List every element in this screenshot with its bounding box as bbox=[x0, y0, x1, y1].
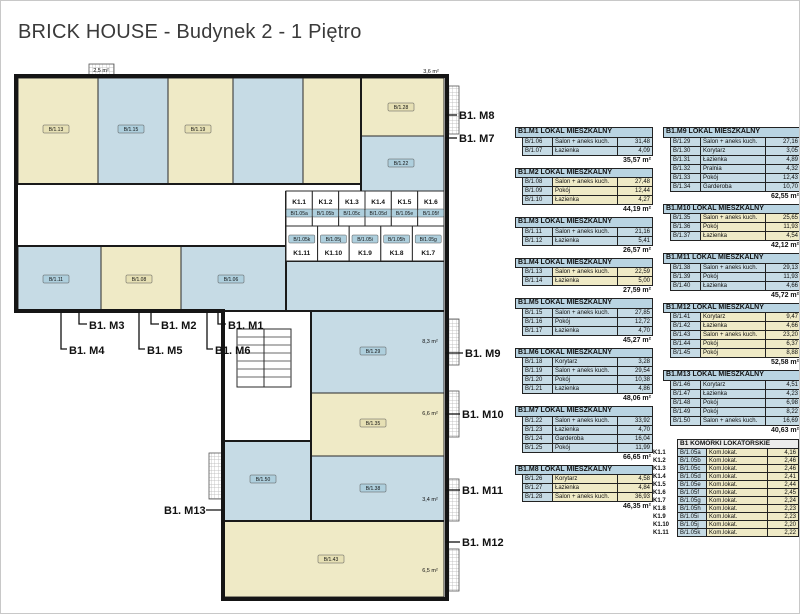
callout-leader-m5 bbox=[139, 312, 145, 349]
storage-area: 2,22 bbox=[768, 529, 798, 536]
table-row: B/1.44Pokój6,37 bbox=[671, 339, 800, 348]
room-code-chip: B/1.28 bbox=[394, 105, 409, 111]
room-code: B/1.16 bbox=[523, 318, 553, 326]
storage-cell-label: K1.11 bbox=[293, 250, 310, 257]
room-name: Salon + aneks kuch. bbox=[553, 309, 618, 317]
table-row: B/1.28Salon + aneks kuch.36,93 bbox=[523, 492, 652, 501]
storage-name: Kom.lokat. bbox=[707, 481, 768, 488]
room-area: 27,48 bbox=[618, 178, 652, 186]
storage-cell-code: B/1.05e bbox=[396, 211, 413, 217]
storage-row-cells: B/1.05fKom.lokat.2,45 bbox=[677, 489, 799, 497]
balcony-area-label: 3,6 m² bbox=[423, 69, 439, 75]
balcony-area-label: 2,5 m² bbox=[93, 68, 109, 74]
apartment-table-header: B1.M13 LOKAL MIESZKALNY bbox=[663, 370, 800, 381]
room-area: 8,22 bbox=[766, 408, 800, 416]
table-row: B/1.34Garderoba10,70 bbox=[671, 182, 800, 191]
room-code: B/1.06 bbox=[523, 138, 553, 146]
apartment-total-area: 45,27 m² bbox=[515, 336, 653, 345]
callout-leader-m6 bbox=[207, 312, 213, 349]
storage-unit-label: K1.9 bbox=[651, 513, 677, 521]
room-code: B/1.31 bbox=[671, 156, 701, 164]
table-row: B/1.22Salon + aneks kuch.33,92 bbox=[523, 417, 652, 425]
room-code: B/1.09 bbox=[523, 187, 553, 195]
room-name: Salon + aneks kuch. bbox=[701, 331, 766, 339]
apartment-total-area: 48,06 m² bbox=[515, 394, 653, 403]
room-area: 4,32 bbox=[766, 165, 800, 173]
storage-cell-code: B/1.05b bbox=[317, 211, 334, 217]
storage-code: B/1.05f bbox=[678, 489, 707, 496]
room-name: Korytarz bbox=[701, 313, 766, 321]
room-code: B/1.38 bbox=[671, 264, 701, 272]
storage-cell-label: K1.4 bbox=[371, 199, 385, 206]
room-code: B/1.29 bbox=[671, 138, 701, 146]
apartment-table-body: B/1.26Korytarz4,58B/1.27Łazienka4,84B/1.… bbox=[522, 475, 653, 502]
storage-name: Kom.lokat. bbox=[707, 473, 768, 480]
apartment-total-area: 35,57 m² bbox=[515, 156, 653, 165]
room-code: B/1.43 bbox=[671, 331, 701, 339]
storage-table: B1 KOMÓRKI LOKATORSKIE K1.1B/1.05aKom.lo… bbox=[651, 439, 799, 537]
table-row: B/1.26Korytarz4,58 bbox=[523, 475, 652, 483]
room-name: Łazienka bbox=[553, 484, 618, 492]
room-name: Salon + aneks kuch. bbox=[701, 417, 766, 425]
apartment-callout-m7: B1. M7 bbox=[459, 133, 494, 145]
room bbox=[233, 78, 303, 184]
storage-unit-label: K1.11 bbox=[651, 529, 677, 537]
apartment-table-header: B1.M7 LOKAL MIESZKALNY bbox=[515, 406, 653, 417]
room-code: B/1.41 bbox=[671, 313, 701, 321]
apartment-callout-m9: B1. M9 bbox=[465, 348, 500, 360]
table-row: B/1.15Salon + aneks kuch.27,85 bbox=[523, 309, 652, 317]
stairs-icon bbox=[237, 329, 291, 387]
room-code: B/1.48 bbox=[671, 399, 701, 407]
room-name: Łazienka bbox=[701, 390, 766, 398]
storage-row: K1.11B/1.05kKom.lokat.2,22 bbox=[651, 529, 799, 537]
storage-name: Kom.lokat. bbox=[707, 449, 768, 456]
apartment-table-b1-m12: B1.M12 LOKAL MIESZKALNYB/1.41Korytarz9,4… bbox=[663, 303, 800, 368]
room-code: B/1.49 bbox=[671, 408, 701, 416]
apartment-table-b1-m7: B1.M7 LOKAL MIESZKALNYB/1.22Salon + anek… bbox=[515, 406, 653, 462]
room-name: Pokój bbox=[553, 444, 618, 452]
room-name: Pokój bbox=[701, 408, 766, 416]
storage-cell-code: B/1.05h bbox=[388, 237, 405, 243]
apartment-table-header: B1.M6 LOKAL MIESZKALNY bbox=[515, 348, 653, 359]
room-code: B/1.44 bbox=[671, 340, 701, 348]
storage-name: Kom.lokat. bbox=[707, 521, 768, 528]
room-area: 5,00 bbox=[618, 277, 652, 285]
callout-leader-m4 bbox=[61, 312, 67, 349]
room-name: Salon + aneks kuch. bbox=[553, 493, 618, 501]
room-area: 11,93 bbox=[766, 223, 800, 231]
room-code: B/1.15 bbox=[523, 309, 553, 317]
room-code-chip: B/1.38 bbox=[366, 486, 381, 492]
room-code: B/1.21 bbox=[523, 385, 553, 393]
apartment-table-header: B1.M9 LOKAL MIESZKALNY bbox=[663, 127, 800, 138]
table-row: B/1.37Łazienka4,54 bbox=[671, 231, 800, 240]
apartment-table-b1-m2: B1.M2 LOKAL MIESZKALNYB/1.08Salon + anek… bbox=[515, 168, 653, 215]
apartment-table-header: B1.M4 LOKAL MIESZKALNY bbox=[515, 258, 653, 269]
storage-name: Kom.lokat. bbox=[707, 529, 768, 536]
apartment-table-header: B1.M11 LOKAL MIESZKALNY bbox=[663, 253, 800, 264]
storage-area: 2,23 bbox=[768, 505, 798, 512]
room-name: Korytarz bbox=[701, 381, 766, 389]
apartment-table-header: B1.M5 LOKAL MIESZKALNY bbox=[515, 298, 653, 309]
storage-area: 2,45 bbox=[768, 489, 798, 496]
apartment-table-header: B1.M10 LOKAL MIESZKALNY bbox=[663, 204, 800, 215]
table-row: B/1.23Łazienka4,70 bbox=[523, 425, 652, 434]
table-row: B/1.07Łazienka4,09 bbox=[523, 146, 652, 155]
storage-code: B/1.05a bbox=[678, 449, 707, 456]
apartment-table-b1-m11: B1.M11 LOKAL MIESZKALNYB/1.38Salon + ane… bbox=[663, 253, 800, 300]
table-row: B/1.32Pralnia4,32 bbox=[671, 164, 800, 173]
storage-cell-label: K1.3 bbox=[345, 199, 359, 206]
room-area: 16,04 bbox=[618, 435, 652, 443]
storage-unit-label: K1.10 bbox=[651, 521, 677, 529]
storage-row-cells: B/1.05bKom.lokat.2,46 bbox=[677, 457, 799, 465]
storage-unit-label: K1.4 bbox=[651, 473, 677, 481]
room-code: B/1.20 bbox=[523, 376, 553, 384]
room-code-chip: B/1.35 bbox=[366, 421, 381, 427]
storage-row-cells: B/1.05jKom.lokat.2,20 bbox=[677, 521, 799, 529]
room-name: Łazienka bbox=[701, 322, 766, 330]
table-row: B/1.43Salon + aneks kuch.23,20 bbox=[671, 330, 800, 339]
room-code: B/1.30 bbox=[671, 147, 701, 155]
storage-code: B/1.05k bbox=[678, 529, 707, 536]
callout-leader-m2 bbox=[151, 312, 159, 324]
apartment-table-body: B/1.22Salon + aneks kuch.33,92B/1.23Łazi… bbox=[522, 417, 653, 453]
apartment-callout-m13: B1. M13 bbox=[164, 505, 206, 517]
room-area: 22,59 bbox=[618, 268, 652, 276]
room-name: Pralnia bbox=[701, 165, 766, 173]
room-name: Salon + aneks kuch. bbox=[553, 367, 618, 375]
table-row: B/1.24Garderoba16,04 bbox=[523, 434, 652, 443]
apartment-total-area: 26,57 m² bbox=[515, 246, 653, 255]
apartment-table-header: B1.M3 LOKAL MIESZKALNY bbox=[515, 217, 653, 228]
room-name: Salon + aneks kuch. bbox=[553, 228, 618, 236]
apartment-callout-m10: B1. M10 bbox=[462, 409, 504, 421]
storage-unit-label: K1.8 bbox=[651, 505, 677, 513]
room-code: B/1.45 bbox=[671, 349, 701, 357]
storage-row-cells: B/1.05aKom.lokat.4,16 bbox=[677, 449, 799, 457]
room-area: 29,13 bbox=[766, 264, 800, 272]
storage-row-cells: B/1.05kKom.lokat.2,22 bbox=[677, 529, 799, 537]
room-code: B/1.22 bbox=[523, 417, 553, 425]
room-code: B/1.24 bbox=[523, 435, 553, 443]
room-name: Pokój bbox=[701, 399, 766, 407]
callout-leader-m3 bbox=[79, 312, 87, 324]
room-name: Łazienka bbox=[701, 232, 766, 240]
room-code: B/1.18 bbox=[523, 358, 553, 366]
apartment-callout-m1: B1. M1 bbox=[228, 320, 263, 332]
storage-row: K1.7B/1.05gKom.lokat.2,24 bbox=[651, 497, 799, 505]
storage-row-cells: B/1.05hKom.lokat.2,23 bbox=[677, 505, 799, 513]
room-area: 4,66 bbox=[766, 282, 800, 290]
apartment-callout-m11: B1. M11 bbox=[462, 485, 503, 497]
floor-plan: K1.1B/1.05aK1.2B/1.05bK1.3B/1.05cK1.4B/1… bbox=[1, 1, 513, 614]
apartment-tables-column-1: B1.M1 LOKAL MIESZKALNYB/1.06Salon + anek… bbox=[515, 127, 653, 514]
storage-code: B/1.05c bbox=[678, 465, 707, 472]
table-row: B/1.11Salon + aneks kuch.21,16 bbox=[523, 228, 652, 236]
apartment-table-b1-m4: B1.M4 LOKAL MIESZKALNYB/1.13Salon + anek… bbox=[515, 258, 653, 296]
storage-cell-label: K1.10 bbox=[325, 250, 343, 257]
apartment-callout-m8: B1. M8 bbox=[459, 110, 494, 122]
storage-row-cells: B/1.05gKom.lokat.2,24 bbox=[677, 497, 799, 505]
storage-cell bbox=[391, 191, 417, 226]
room-code: B/1.27 bbox=[523, 484, 553, 492]
room-area: 27,85 bbox=[618, 309, 652, 317]
apartment-callout-m6: B1. M6 bbox=[215, 345, 250, 357]
room-area: 29,54 bbox=[618, 367, 652, 375]
page: BRICK HOUSE - Budynek 2 - 1 Piętro bbox=[0, 0, 800, 614]
table-row: B/1.41Korytarz9,47 bbox=[671, 313, 800, 321]
table-row: B/1.16Pokój12,72 bbox=[523, 317, 652, 326]
room-code: B/1.25 bbox=[523, 444, 553, 452]
apartment-table-header: B1.M1 LOKAL MIESZKALNY bbox=[515, 127, 653, 138]
room-area: 6,37 bbox=[766, 340, 800, 348]
room-code: B/1.37 bbox=[671, 232, 701, 240]
table-row: B/1.45Pokój8,88 bbox=[671, 348, 800, 357]
room-area: 9,47 bbox=[766, 313, 800, 321]
room-code: B/1.34 bbox=[671, 183, 701, 191]
room-code-chip: B/1.19 bbox=[191, 127, 206, 133]
apartment-table-body: B/1.18Korytarz3,28B/1.19Salon + aneks ku… bbox=[522, 358, 653, 394]
storage-cell-code: B/1.05a bbox=[291, 211, 308, 217]
balcony-area-label: 8,3 m² bbox=[422, 339, 438, 345]
storage-code: B/1.05e bbox=[678, 481, 707, 488]
room-name: Łazienka bbox=[701, 282, 766, 290]
apartment-table-body: B/1.41Korytarz9,47B/1.42Łazienka4,66B/1.… bbox=[670, 313, 800, 358]
room-name: Pokój bbox=[553, 376, 618, 384]
storage-area: 2,46 bbox=[768, 457, 798, 464]
apartment-total-area: 46,35 m² bbox=[515, 502, 653, 511]
room-code: B/1.32 bbox=[671, 165, 701, 173]
storage-area: 2,24 bbox=[768, 497, 798, 504]
room-name: Pokój bbox=[553, 318, 618, 326]
apartment-table-header: B1.M12 LOKAL MIESZKALNY bbox=[663, 303, 800, 314]
storage-row: K1.4B/1.05dKom.lokat.2,41 bbox=[651, 473, 799, 481]
table-row: B/1.19Salon + aneks kuch.29,54 bbox=[523, 366, 652, 375]
table-row: B/1.48Pokój6,98 bbox=[671, 398, 800, 407]
apartment-callout-m12: B1. M12 bbox=[462, 537, 504, 549]
storage-cell-code: B/1.05i bbox=[357, 237, 373, 243]
storage-area: 4,16 bbox=[768, 449, 798, 456]
room-code-chip: B/1.15 bbox=[124, 127, 139, 133]
room-area: 10,70 bbox=[766, 183, 800, 191]
apartment-total-area: 66,65 m² bbox=[515, 453, 653, 462]
room-code: B/1.08 bbox=[523, 178, 553, 186]
room-code-chip: B/1.06 bbox=[224, 277, 239, 283]
storage-row-cells: B/1.05cKom.lokat.2,46 bbox=[677, 465, 799, 473]
table-row: B/1.33Pokój12,43 bbox=[671, 173, 800, 182]
room-area: 11,93 bbox=[766, 273, 800, 281]
table-row: B/1.17Łazienka4,70 bbox=[523, 326, 652, 335]
storage-row-cells: B/1.05dKom.lokat.2,41 bbox=[677, 473, 799, 481]
room-code-chip: B/1.08 bbox=[132, 277, 147, 283]
storage-code: B/1.05j bbox=[678, 521, 707, 528]
room-area: 25,65 bbox=[766, 214, 800, 222]
storage-cell-label: K1.1 bbox=[292, 199, 306, 206]
table-row: B/1.38Salon + aneks kuch.29,13 bbox=[671, 264, 800, 272]
room-code: B/1.35 bbox=[671, 214, 701, 222]
apartment-callout-m3: B1. M3 bbox=[89, 320, 124, 332]
storage-code: B/1.05d bbox=[678, 473, 707, 480]
apartment-table-header: B1.M2 LOKAL MIESZKALNY bbox=[515, 168, 653, 179]
table-row: B/1.25Pokój11,99 bbox=[523, 443, 652, 452]
storage-row: K1.5B/1.05eKom.lokat.2,44 bbox=[651, 481, 799, 489]
apartment-table-b1-m10: B1.M10 LOKAL MIESZKALNYB/1.35Salon + ane… bbox=[663, 204, 800, 251]
room-code: B/1.19 bbox=[523, 367, 553, 375]
table-row: B/1.42Łazienka4,66 bbox=[671, 321, 800, 330]
room-code: B/1.28 bbox=[523, 493, 553, 501]
room-area: 6,98 bbox=[766, 399, 800, 407]
room-code: B/1.26 bbox=[523, 475, 553, 483]
storage-area: 2,44 bbox=[768, 481, 798, 488]
storage-name: Kom.lokat. bbox=[707, 513, 768, 520]
room-name: Korytarz bbox=[701, 147, 766, 155]
room-name: Salon + aneks kuch. bbox=[553, 138, 618, 146]
apartment-total-area: 62,55 m² bbox=[663, 192, 800, 201]
table-row: B/1.21Łazienka4,86 bbox=[523, 384, 652, 393]
storage-area: 2,20 bbox=[768, 521, 798, 528]
storage-row: K1.9B/1.05iKom.lokat.2,23 bbox=[651, 513, 799, 521]
room-area: 3,28 bbox=[618, 358, 652, 366]
apartment-table-b1-m9: B1.M9 LOKAL MIESZKALNYB/1.29Salon + anek… bbox=[663, 127, 800, 201]
room-area: 4,27 bbox=[618, 196, 652, 204]
room-name: Łazienka bbox=[553, 327, 618, 335]
room-area: 12,43 bbox=[766, 174, 800, 182]
room-code: B/1.36 bbox=[671, 223, 701, 231]
storage-row: K1.8B/1.05hKom.lokat.2,23 bbox=[651, 505, 799, 513]
room-name: Pokój bbox=[701, 223, 766, 231]
table-row: B/1.40Łazienka4,66 bbox=[671, 281, 800, 290]
room-name: Pokój bbox=[701, 340, 766, 348]
balcony bbox=[209, 453, 223, 499]
storage-unit-label: K1.5 bbox=[651, 481, 677, 489]
apartment-total-area: 45,72 m² bbox=[663, 291, 800, 300]
apartment-tables-column-2: B1.M9 LOKAL MIESZKALNYB/1.29Salon + anek… bbox=[663, 127, 800, 438]
table-row: B/1.20Pokój10,38 bbox=[523, 375, 652, 384]
storage-row: K1.3B/1.05cKom.lokat.2,46 bbox=[651, 465, 799, 473]
room-area: 12,72 bbox=[618, 318, 652, 326]
room-code: B/1.07 bbox=[523, 147, 553, 155]
room-area: 4,70 bbox=[618, 327, 652, 335]
room-name: Salon + aneks kuch. bbox=[553, 178, 618, 186]
room-area: 4,66 bbox=[766, 322, 800, 330]
room-area: 12,44 bbox=[618, 187, 652, 195]
room-name: Garderoba bbox=[553, 435, 618, 443]
storage-cell-code: B/1.05d bbox=[370, 211, 387, 217]
storage-cell-label: K1.6 bbox=[424, 199, 438, 206]
table-row: B/1.35Salon + aneks kuch.25,65 bbox=[671, 214, 800, 222]
table-row: B/1.12Łazienka5,41 bbox=[523, 236, 652, 245]
storage-area: 2,46 bbox=[768, 465, 798, 472]
room-code: B/1.40 bbox=[671, 282, 701, 290]
balcony-area-label: 6,6 m² bbox=[422, 411, 438, 417]
storage-unit-label: K1.6 bbox=[651, 489, 677, 497]
storage-cell-label: K1.2 bbox=[319, 199, 333, 206]
room-name: Pokój bbox=[701, 349, 766, 357]
room-area: 33,92 bbox=[618, 417, 652, 425]
storage-table-header: B1 KOMÓRKI LOKATORSKIE bbox=[677, 439, 799, 449]
apartment-table-body: B/1.38Salon + aneks kuch.29,13B/1.39Pokó… bbox=[670, 264, 800, 291]
room-area: 21,16 bbox=[618, 228, 652, 236]
table-row: B/1.36Pokój11,93 bbox=[671, 222, 800, 231]
room-code-chip: B/1.22 bbox=[394, 161, 409, 167]
room-code: B/1.23 bbox=[523, 426, 553, 434]
apartment-total-area: 52,58 m² bbox=[663, 358, 800, 367]
apartment-table-header: B1.M8 LOKAL MIESZKALNY bbox=[515, 465, 653, 476]
room-area: 5,41 bbox=[618, 237, 652, 245]
balcony-area-label: 6,5 m² bbox=[422, 568, 438, 574]
room-name: Łazienka bbox=[553, 237, 618, 245]
room bbox=[286, 261, 444, 311]
apartment-table-b1-m13: B1.M13 LOKAL MIESZKALNYB/1.46Korytarz4,5… bbox=[663, 370, 800, 435]
apartment-table-body: B/1.15Salon + aneks kuch.27,85B/1.16Pokó… bbox=[522, 309, 653, 336]
storage-area: 2,41 bbox=[768, 473, 798, 480]
table-row: B/1.47Łazienka4,23 bbox=[671, 389, 800, 398]
room-name: Salon + aneks kuch. bbox=[553, 268, 618, 276]
apartment-total-area: 44,19 m² bbox=[515, 205, 653, 214]
room-name: Pokój bbox=[553, 187, 618, 195]
room bbox=[303, 78, 361, 184]
storage-code: B/1.05b bbox=[678, 457, 707, 464]
storage-area: 2,23 bbox=[768, 513, 798, 520]
room-name: Korytarz bbox=[553, 358, 618, 366]
storage-code: B/1.05h bbox=[678, 505, 707, 512]
storage-name: Kom.lokat. bbox=[707, 465, 768, 472]
apartment-table-body: B/1.13Salon + aneks kuch.22,59B/1.14Łazi… bbox=[522, 268, 653, 286]
room-name: Korytarz bbox=[553, 475, 618, 483]
room-code: B/1.42 bbox=[671, 322, 701, 330]
storage-cell bbox=[418, 191, 444, 226]
storage-cell-label: K1.7 bbox=[421, 250, 435, 257]
room-code: B/1.11 bbox=[523, 228, 553, 236]
room-name: Salon + aneks kuch. bbox=[553, 417, 618, 425]
table-row: B/1.06Salon + aneks kuch.31,48 bbox=[523, 138, 652, 146]
storage-cell bbox=[339, 191, 365, 226]
room-name: Łazienka bbox=[553, 385, 618, 393]
room-code: B/1.17 bbox=[523, 327, 553, 335]
storage-cell-label: K1.9 bbox=[358, 250, 372, 257]
room-area: 31,48 bbox=[618, 138, 652, 146]
room-name: Salon + aneks kuch. bbox=[701, 264, 766, 272]
room-name: Salon + aneks kuch. bbox=[701, 214, 766, 222]
room-name: Łazienka bbox=[553, 277, 618, 285]
room-area: 23,20 bbox=[766, 331, 800, 339]
room-area: 27,16 bbox=[766, 138, 800, 146]
apartment-table-b1-m8: B1.M8 LOKAL MIESZKALNYB/1.26Korytarz4,58… bbox=[515, 465, 653, 512]
table-row: B/1.49Pokój8,22 bbox=[671, 407, 800, 416]
table-row: B/1.31Łazienka4,89 bbox=[671, 155, 800, 164]
storage-row-cells: B/1.05eKom.lokat.2,44 bbox=[677, 481, 799, 489]
apartment-table-body: B/1.35Salon + aneks kuch.25,65B/1.36Pokó… bbox=[670, 214, 800, 241]
room-name: Łazienka bbox=[553, 147, 618, 155]
room-area: 4,58 bbox=[618, 475, 652, 483]
apartment-callout-m2: B1. M2 bbox=[161, 320, 196, 332]
storage-cell-code: B/1.05g bbox=[420, 237, 437, 243]
storage-code: B/1.05i bbox=[678, 513, 707, 520]
room-name: Salon + aneks kuch. bbox=[701, 138, 766, 146]
storage-unit-label: K1.1 bbox=[651, 449, 677, 457]
room-area: 8,88 bbox=[766, 349, 800, 357]
storage-name: Kom.lokat. bbox=[707, 505, 768, 512]
storage-cell bbox=[312, 191, 338, 226]
room-area: 4,51 bbox=[766, 381, 800, 389]
room-area: 16,69 bbox=[766, 417, 800, 425]
storage-unit-label: K1.2 bbox=[651, 457, 677, 465]
room-code: B/1.13 bbox=[523, 268, 553, 276]
apartment-total-area: 40,63 m² bbox=[663, 426, 800, 435]
storage-row: K1.2B/1.05bKom.lokat.2,46 bbox=[651, 457, 799, 465]
